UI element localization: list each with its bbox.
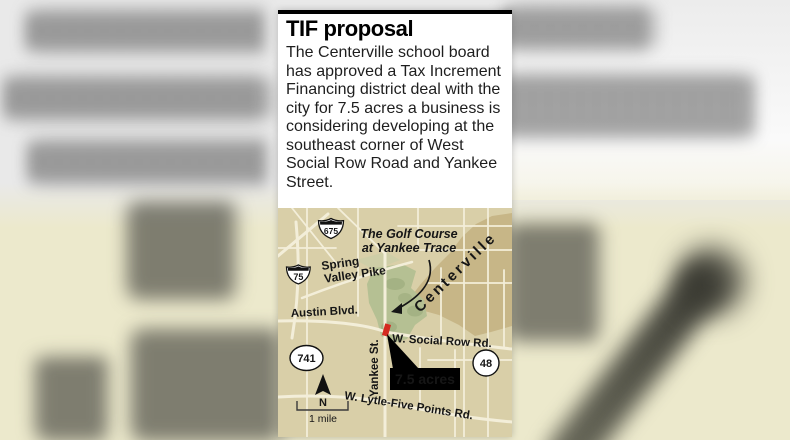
interstate-75-number: 75	[293, 272, 303, 282]
bg-blurred-headline-2	[6, 76, 268, 120]
bg-blurred-block-2	[508, 222, 600, 340]
route-48-number: 48	[480, 358, 492, 370]
route-741-number: 741	[297, 353, 315, 365]
tif-proposal-infographic: TIF proposal The Centerville school boar…	[278, 10, 512, 437]
card-text-block: TIF proposal The Centerville school boar…	[278, 14, 512, 208]
yankee-st-label: Yankee St.	[369, 339, 381, 397]
bg-blurred-block-1	[128, 202, 236, 298]
bg-blurred-block-3	[36, 355, 108, 440]
golf-course-label-line1: The Golf Course	[360, 227, 457, 241]
bg-blurred-object	[537, 253, 733, 440]
golf-course-label-line2: at Yankee Trace	[362, 241, 456, 255]
newspaper-page: TIF proposal The Centerville school boar…	[0, 0, 790, 440]
bg-blurred-headline-1	[28, 10, 268, 52]
north-label: N	[319, 397, 327, 409]
interstate-675-number: 675	[324, 226, 338, 236]
bg-paper-area	[500, 0, 790, 200]
acres-callout-text: 7.5 acres	[395, 371, 455, 387]
graphic-title: TIF proposal	[286, 17, 504, 41]
bg-blurred-block-4	[132, 330, 282, 440]
bg-blurred-headline-5	[504, 74, 752, 138]
graphic-caption: The Centerville school board has approve…	[286, 44, 504, 192]
bg-blurred-object-head	[676, 246, 746, 316]
route-741-shield-icon: 741	[290, 346, 323, 371]
route-48-shield-icon: 48	[473, 350, 499, 376]
locator-map: 675 75 741 48 T	[278, 208, 512, 437]
bg-blurred-headline-3	[30, 140, 268, 184]
scale-label: 1 mile	[309, 413, 337, 425]
map-canvas: 675 75 741 48 T	[278, 208, 512, 437]
golf-course-trees-1	[385, 278, 405, 290]
bg-blurred-headline-4	[506, 6, 654, 50]
